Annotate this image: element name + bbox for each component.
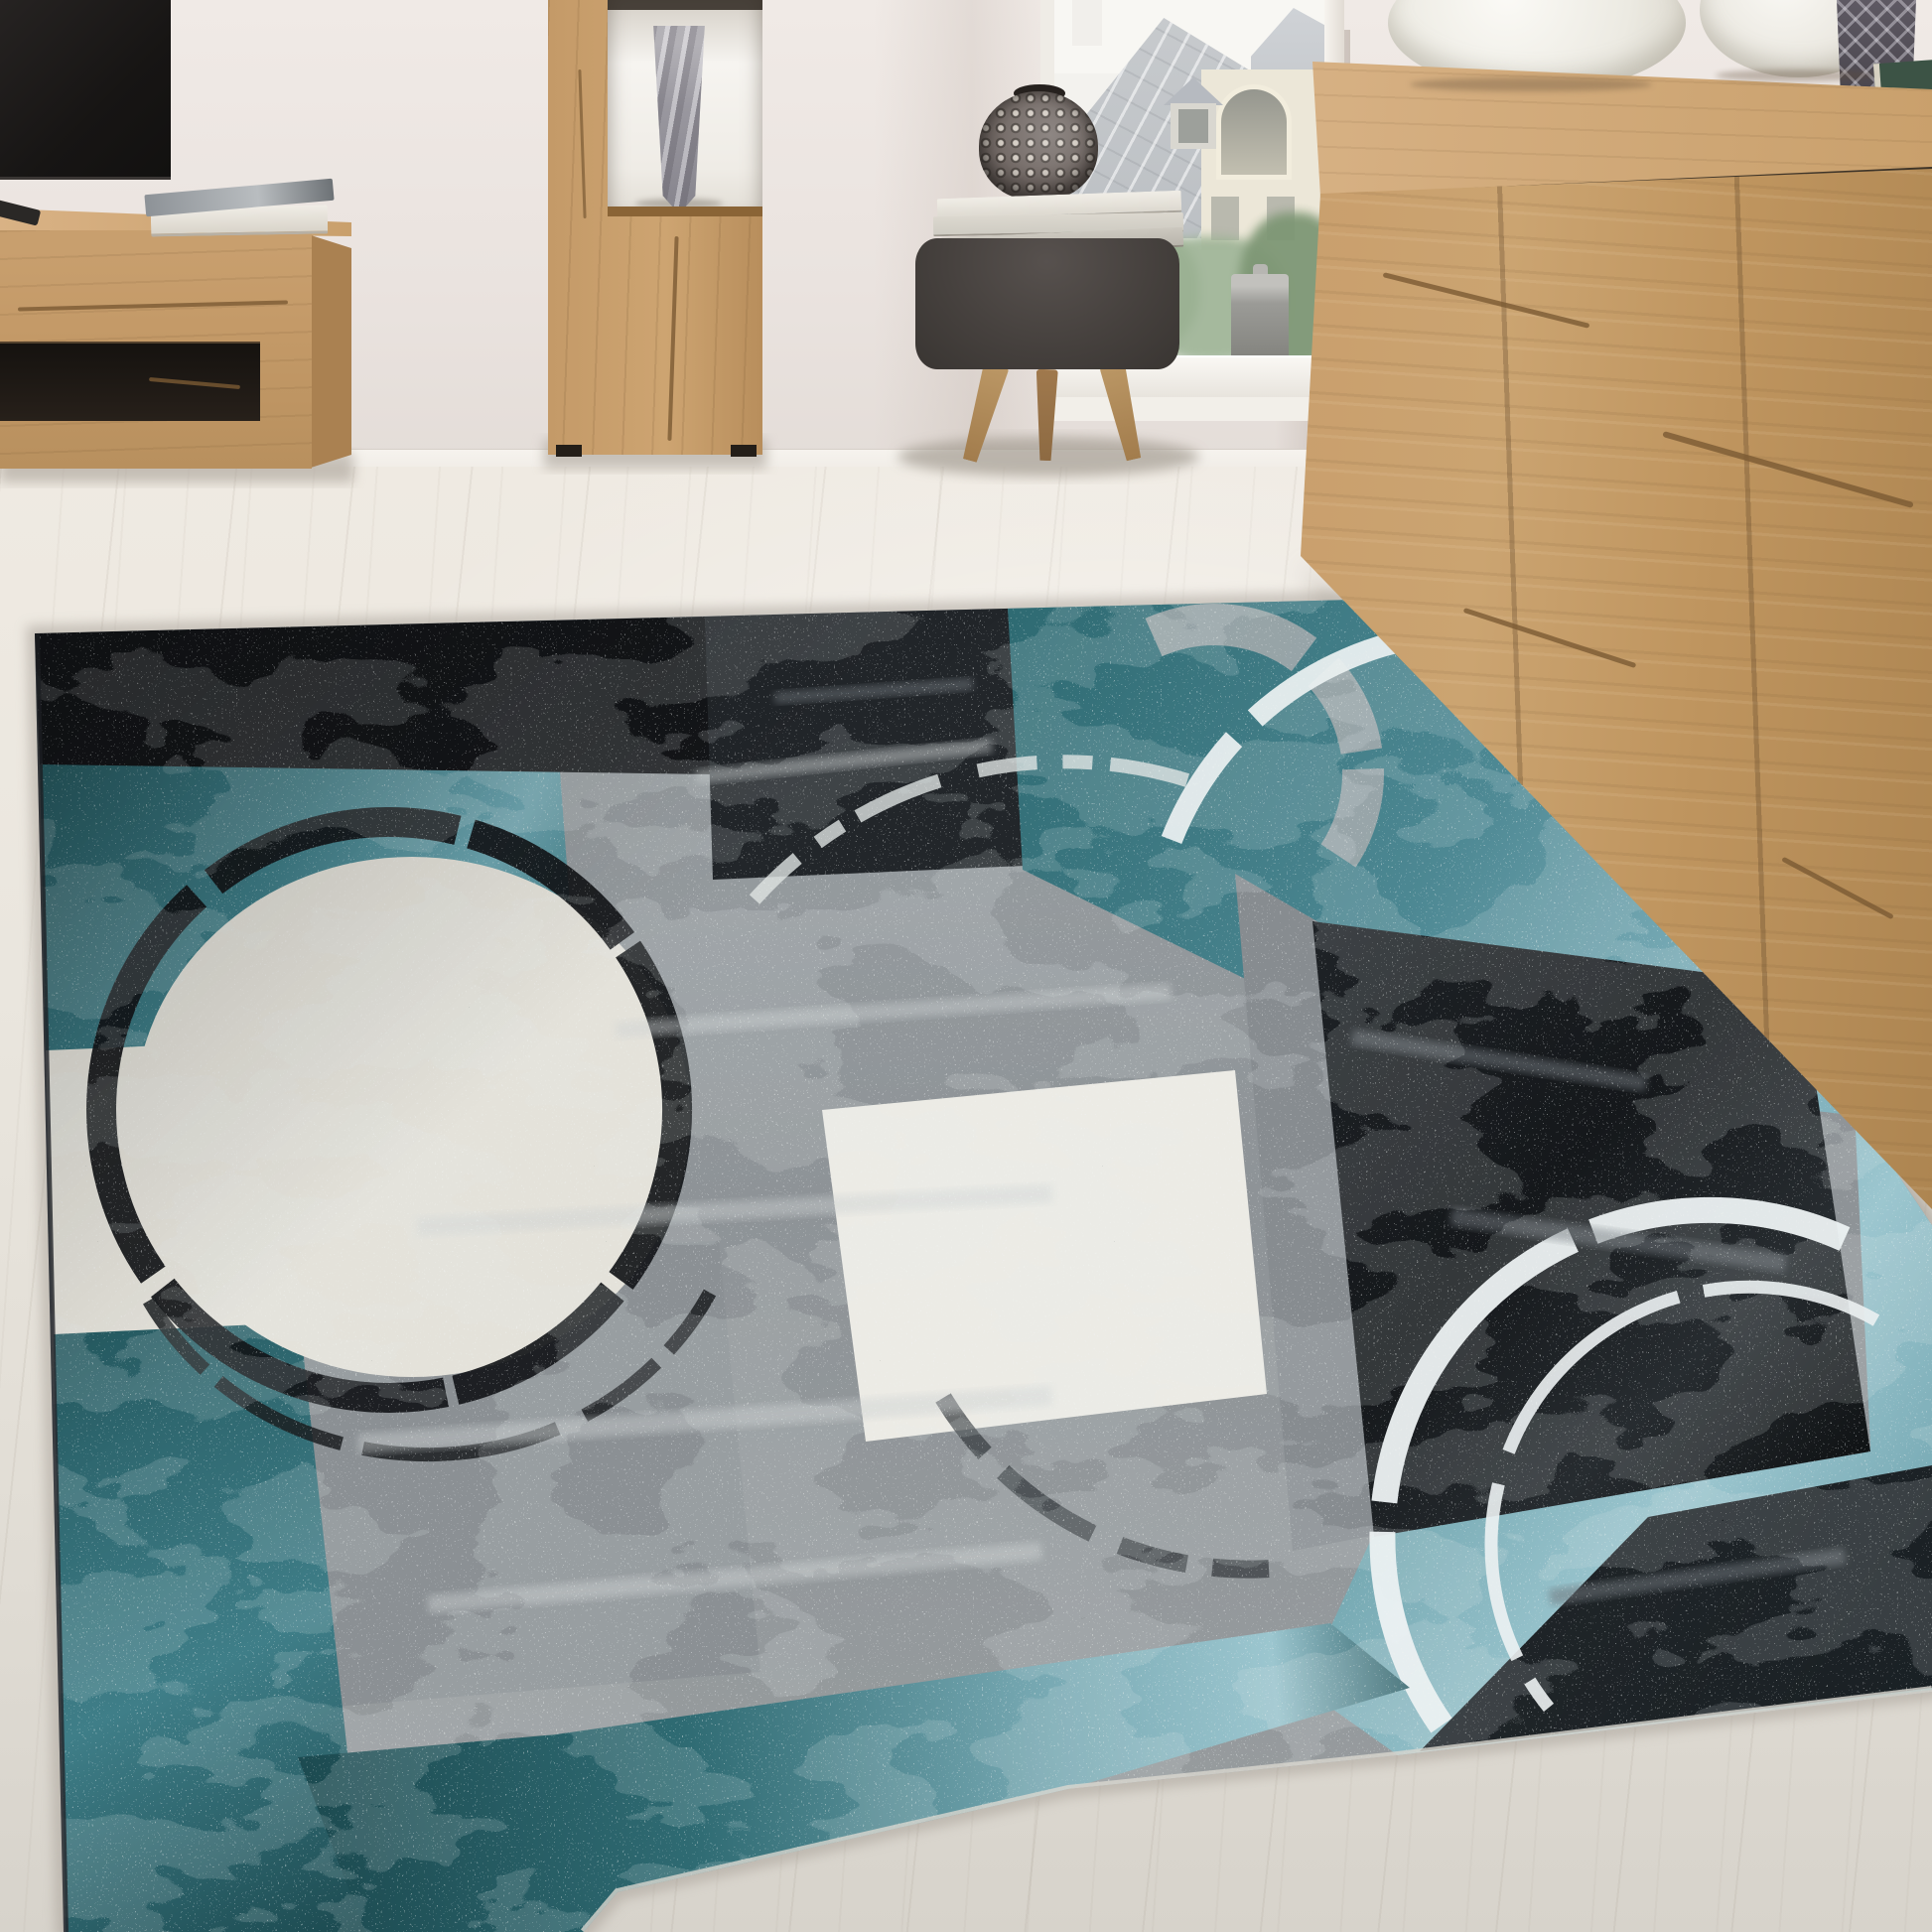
- cabinet-shelf-edge: [608, 207, 762, 216]
- cabinet-foot: [556, 445, 582, 457]
- living-room-photo: Living room with an abstract distressed …: [0, 0, 1932, 1932]
- cabinet-foot: [731, 445, 757, 457]
- stool-cushion: [915, 238, 1179, 369]
- tv-lowboard-niche: [0, 342, 260, 421]
- bowl-shadow: [1716, 69, 1874, 81]
- tv: [0, 0, 171, 180]
- pineapple-vase: [979, 91, 1098, 201]
- cabinet-niche-top: [608, 0, 762, 10]
- bowl-shadow: [1410, 77, 1652, 91]
- tv-lowboard-side: [308, 234, 351, 469]
